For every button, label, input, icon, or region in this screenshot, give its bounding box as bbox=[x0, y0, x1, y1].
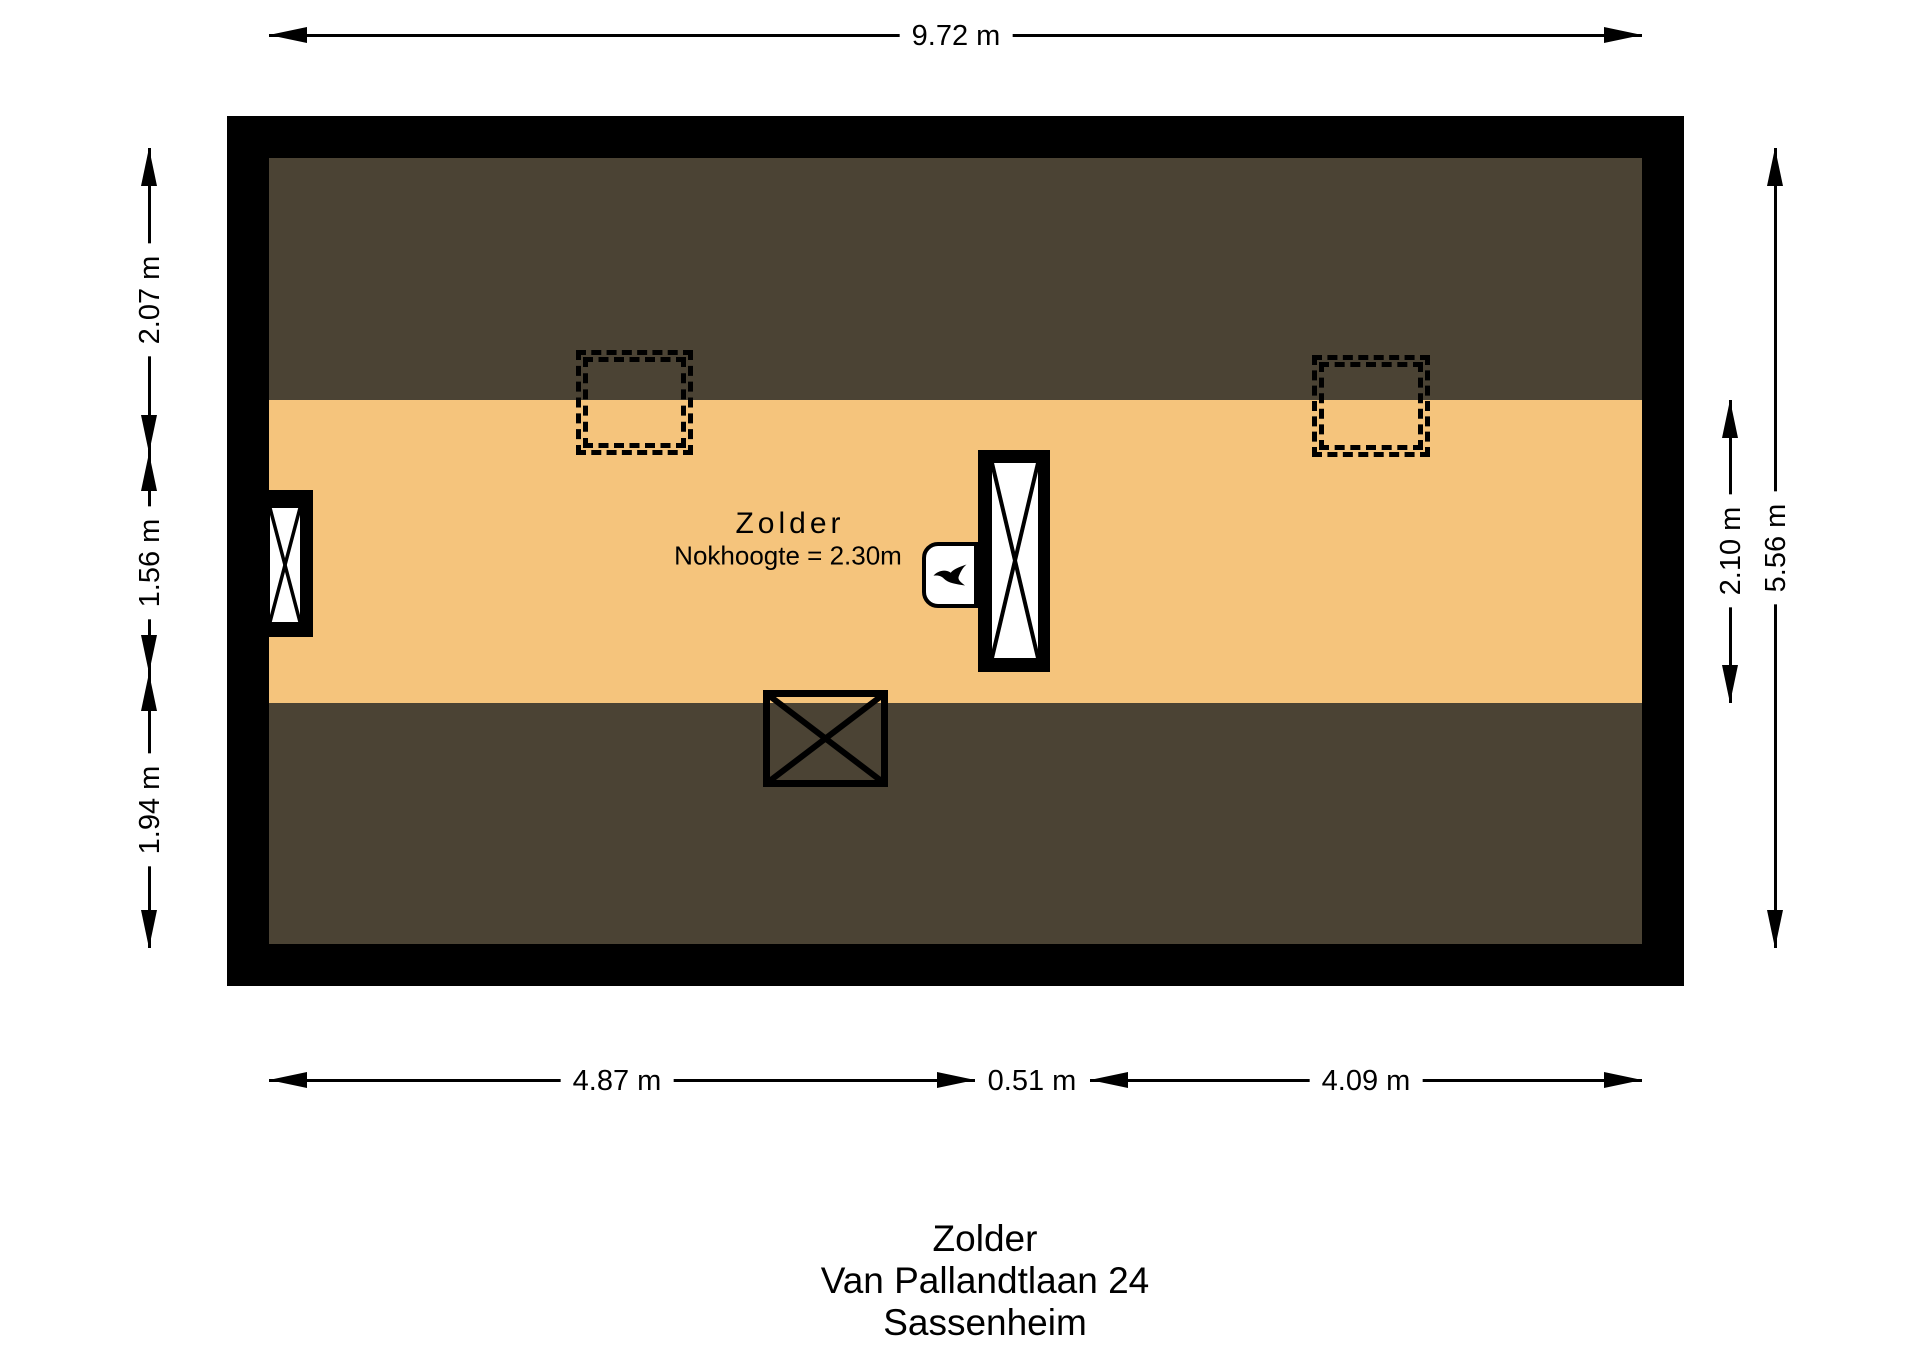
arrowhead-left-icon bbox=[1090, 1072, 1128, 1088]
boiler bbox=[922, 542, 978, 608]
arrowhead-down-icon bbox=[1767, 910, 1783, 948]
room-name-label: Zolder bbox=[735, 507, 844, 541]
arrowhead-up-icon bbox=[141, 148, 157, 186]
dimension-label-right-total: 5.56 m bbox=[1759, 492, 1793, 605]
chimney-symbol bbox=[992, 463, 1038, 658]
arrowhead-up-icon bbox=[1722, 400, 1738, 438]
dimension-label-bottom-right: 4.09 m bbox=[1310, 1064, 1423, 1098]
dimension-label-left-top: 2.07 m bbox=[133, 244, 167, 357]
arrowhead-down-icon bbox=[1722, 665, 1738, 703]
title-block: Zolder Van Pallandtlaan 24 Sassenheim bbox=[821, 1218, 1149, 1344]
title-room: Zolder bbox=[821, 1218, 1149, 1260]
dimension-label-bottom-middle: 0.51 m bbox=[976, 1064, 1089, 1098]
arrowhead-down-icon bbox=[141, 910, 157, 948]
dimension-label-total-width: 9.72 m bbox=[900, 19, 1013, 53]
ridge-height-label: Nokhoogte = 2.30m bbox=[674, 541, 902, 572]
arrowhead-right-icon bbox=[1604, 27, 1642, 43]
floorplan-page: 9.72 m 2.07 m 1.56 m 1.94 m 2.10 m 5.56 … bbox=[0, 0, 1920, 1358]
arrowhead-up-icon bbox=[141, 453, 157, 491]
flame-icon bbox=[932, 563, 968, 587]
arrowhead-right-icon bbox=[1604, 1072, 1642, 1088]
dimension-label-left-bottom: 1.94 m bbox=[133, 754, 167, 867]
dimension-label-bottom-left: 4.87 m bbox=[561, 1064, 674, 1098]
dimension-label-right-inner: 2.10 m bbox=[1714, 495, 1748, 608]
window-symbol bbox=[270, 508, 300, 622]
arrowhead-left-icon bbox=[269, 27, 307, 43]
skylight-dashed-outline-left bbox=[576, 350, 693, 455]
title-address: Van Pallandtlaan 24 bbox=[821, 1260, 1149, 1302]
void-cross-box bbox=[763, 690, 888, 787]
roof-slope-area-top bbox=[269, 158, 1642, 400]
arrowhead-down-icon bbox=[141, 415, 157, 453]
arrowhead-right-icon bbox=[937, 1072, 975, 1088]
skylight-dashed-outline-right bbox=[1312, 355, 1430, 457]
arrowhead-up-icon bbox=[1767, 148, 1783, 186]
arrowhead-up-icon bbox=[141, 673, 157, 711]
arrowhead-down-icon bbox=[141, 635, 157, 673]
arrowhead-left-icon bbox=[269, 1072, 307, 1088]
roof-slope-area-bottom bbox=[269, 703, 1642, 944]
title-city: Sassenheim bbox=[821, 1302, 1149, 1344]
dimension-label-left-middle: 1.56 m bbox=[133, 507, 167, 620]
